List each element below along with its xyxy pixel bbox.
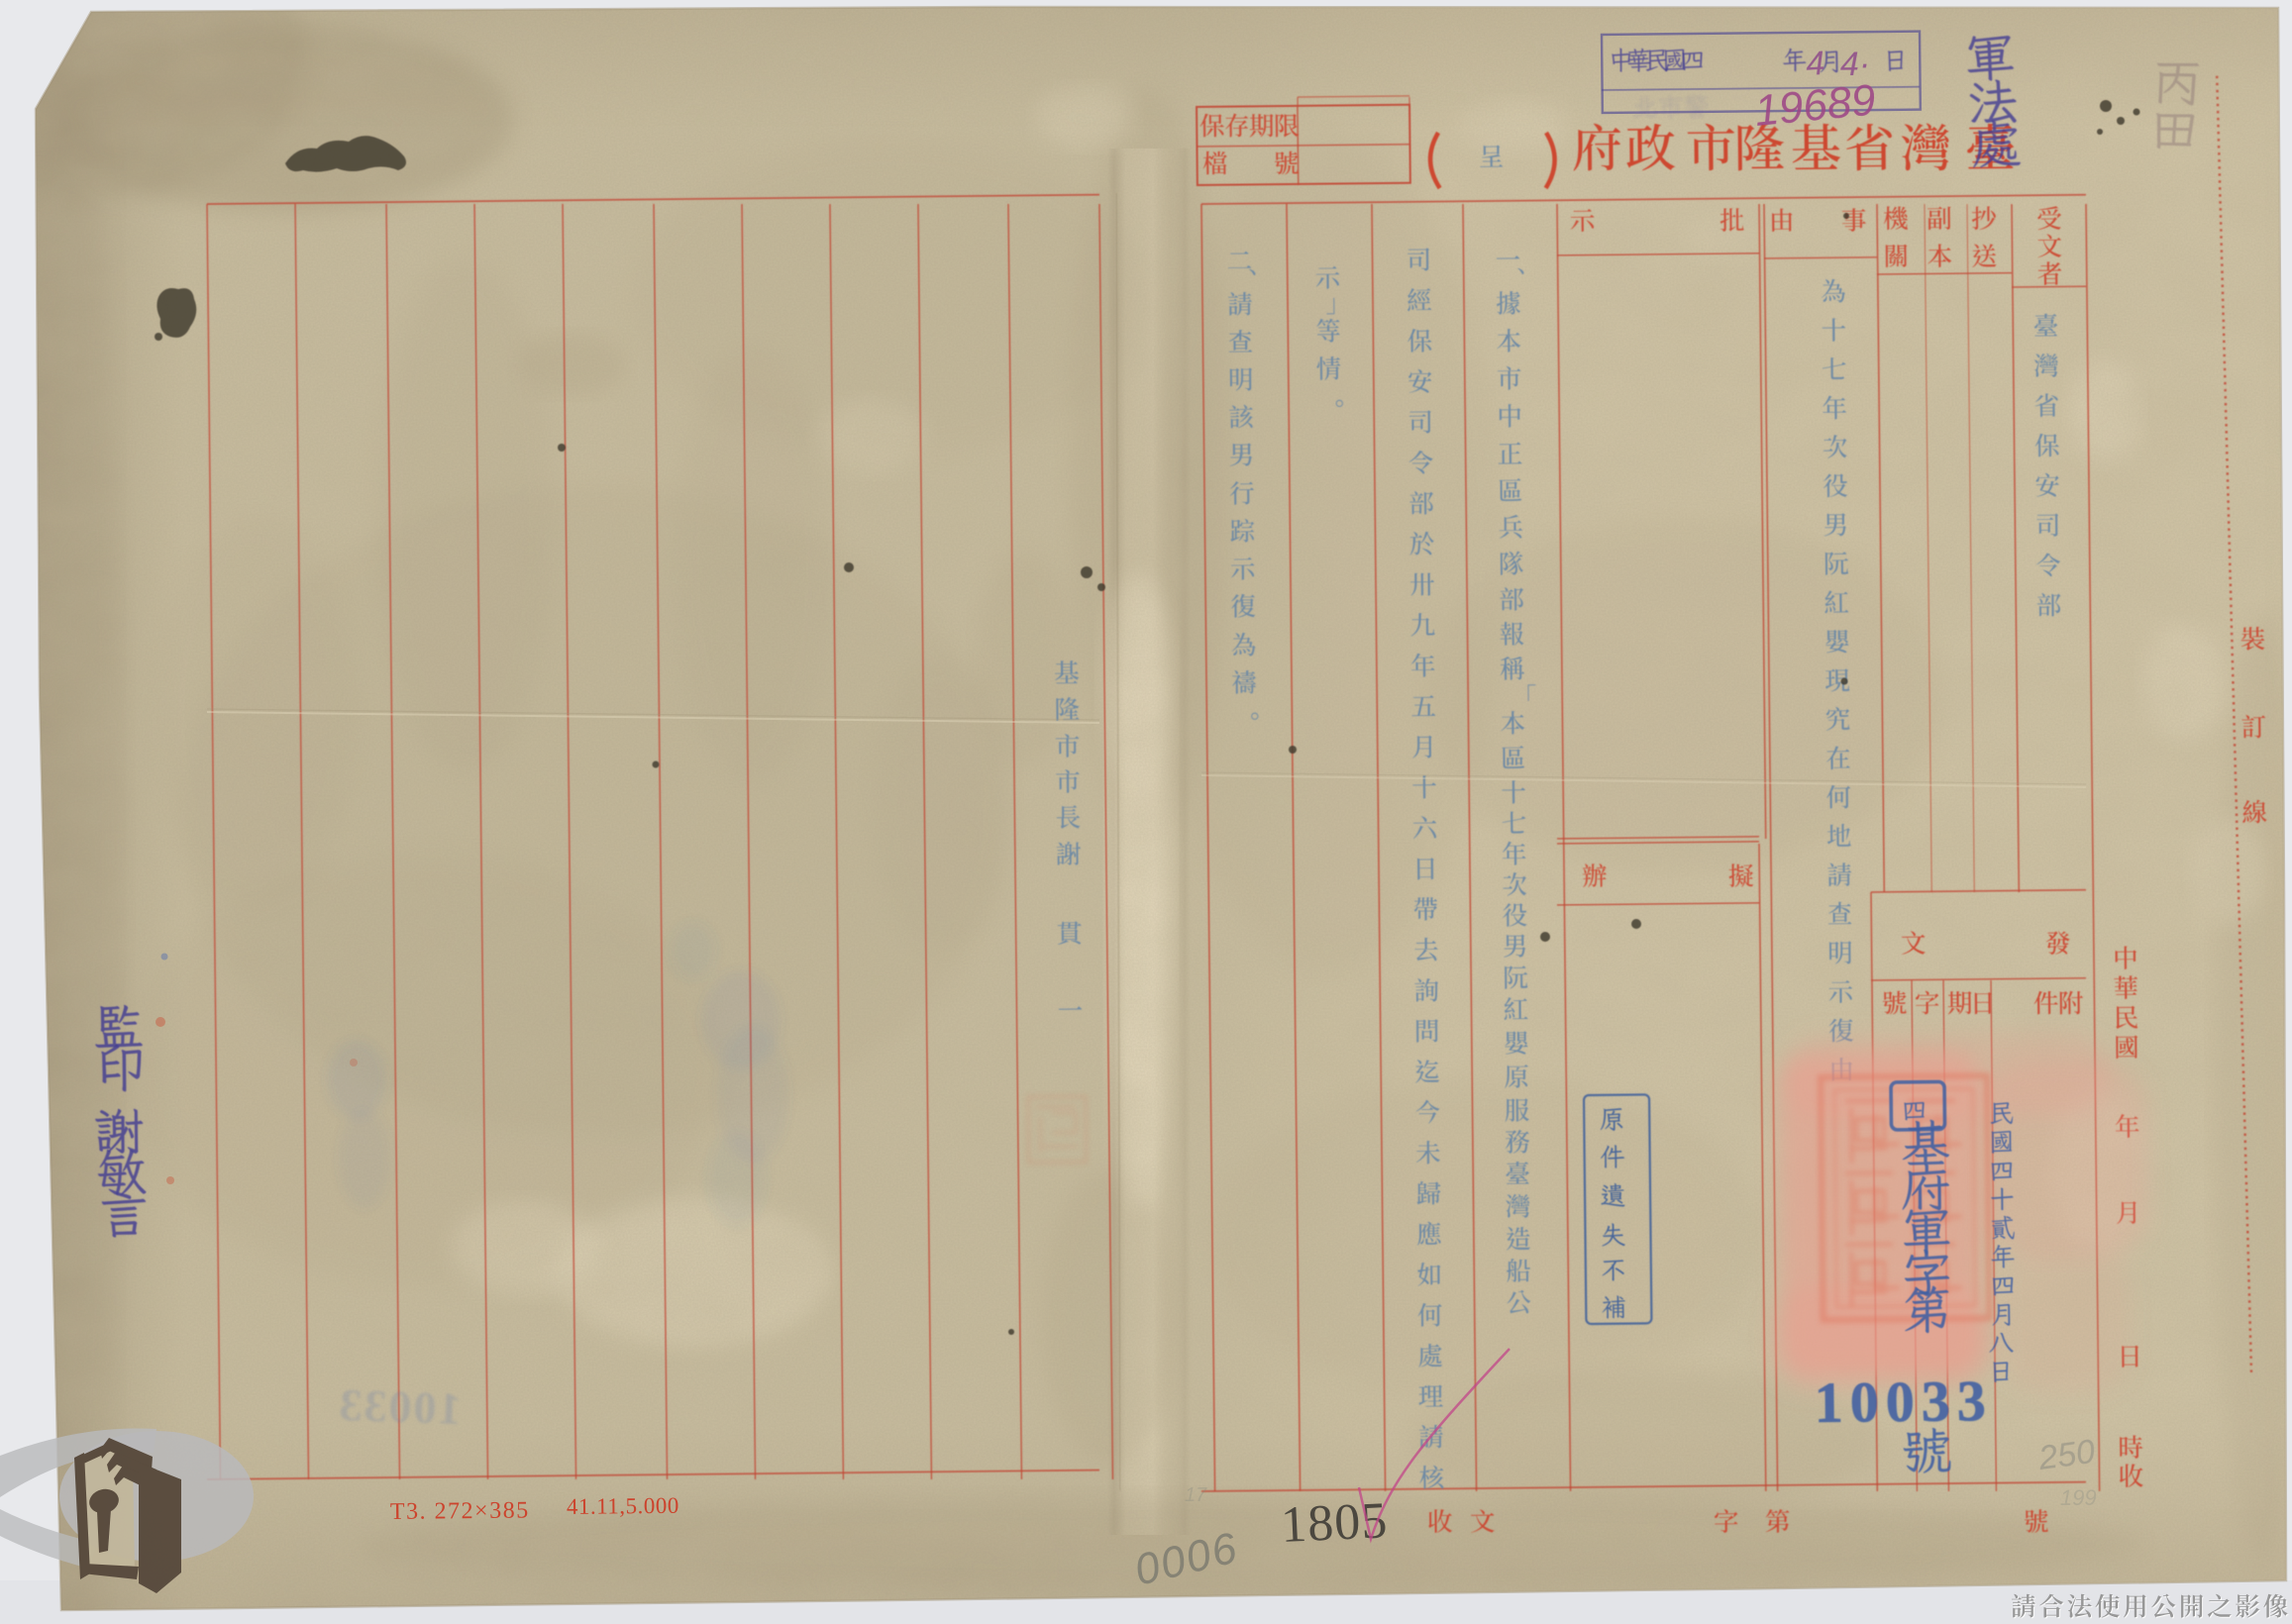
svg-text:17: 17 — [1185, 1484, 1207, 1506]
svg-text:199: 199 — [2060, 1485, 2097, 1510]
svg-text:41.11,5.000: 41.11,5.000 — [567, 1493, 679, 1519]
svg-text:10033: 10033 — [1814, 1369, 1993, 1435]
svg-text:T3. 272×385: T3. 272×385 — [390, 1497, 530, 1524]
svg-text:10033: 10033 — [337, 1379, 463, 1434]
svg-text:4: 4 — [1805, 45, 1825, 83]
svg-text:250: 250 — [2035, 1433, 2097, 1477]
svg-text:1805: 1805 — [1280, 1492, 1389, 1554]
